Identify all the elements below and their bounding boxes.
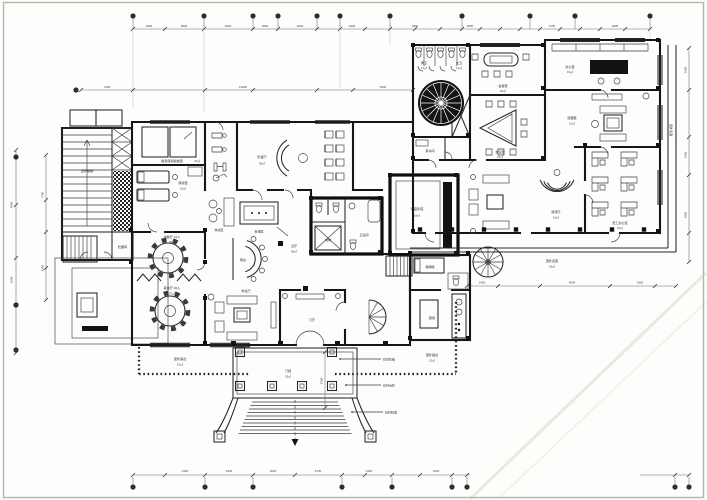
dim-porch-0: 4500 [320, 377, 324, 384]
room-label-bar: 吧台 [240, 257, 246, 262]
room-label-elevator: 电梯 [325, 237, 331, 242]
room-area-reception: 19㎡ [553, 215, 559, 220]
room-area-banquet: 75㎡ [169, 291, 175, 296]
room-label-mens: 男卫 [421, 60, 427, 65]
room-label-nanny: 保姆房 [425, 264, 434, 269]
dim-top-8: 2100 [549, 24, 556, 28]
room-label-parlor: 会客室 [498, 83, 507, 88]
room-area-terrace-west: 15㎡ [177, 362, 183, 367]
dim-top-5: 2300 [349, 24, 356, 28]
room-label-lounge-main: 休息厅 [241, 288, 250, 293]
room-label-pantry: 茶水间 [425, 148, 434, 153]
room-area-av-hall: 36㎡ [259, 161, 265, 166]
dim-walkway-0: 2400 [479, 281, 486, 285]
room-label-office: 办公室 [565, 64, 574, 69]
office-desk [590, 60, 628, 74]
room-label-vestibule: 门厅 [309, 317, 315, 322]
dim-left-inner-0: 7700 [41, 191, 45, 198]
room-label-walkway-east: 室外走廊 [669, 124, 674, 136]
room-label-av-hall: 影音厅 [257, 154, 266, 159]
room-label-terrace-west: 室外露台 [174, 356, 186, 361]
floor-plan-image: 3300 3900 2400 2600 2200 2300 2800 2500 … [0, 0, 707, 500]
dim-upper-2: 5200 [380, 85, 387, 89]
room-label-banquet: 宴会厅 40人 [164, 285, 181, 290]
dim-right-1: 6600 [684, 151, 688, 158]
dim-top-4: 2200 [297, 24, 304, 28]
annotation-stone-plinth: 石材柱墩 [385, 410, 397, 415]
room-area-staff: 24㎡ [617, 225, 623, 230]
room-area-manager: 21㎡ [569, 121, 575, 126]
room-label-gym: 健身房和瑜伽室 [161, 158, 183, 163]
room-label-porch: 门廊 [285, 368, 291, 373]
dim-top-7: 2500 [467, 24, 474, 28]
dim-top-2: 2400 [225, 24, 232, 28]
room-label-staff: 员工办公区 [612, 220, 627, 225]
room-area-walkway-south: 63㎡ [549, 264, 555, 269]
room-label-outdoor-stair: 室外楼梯 [81, 168, 93, 173]
room-label-kitchen: 厨房 [429, 315, 435, 320]
dim-right-2: 4800 [684, 211, 688, 218]
dim-top-6: 2800 [412, 24, 419, 28]
room-label-terrace-east: 室外露台 [426, 352, 438, 357]
room-area-porch: 25㎡ [285, 374, 291, 379]
room-label-womens: 女卫 [456, 60, 462, 65]
scanned-floor-plan-page: 3300 3900 2400 2600 2200 2300 2800 2500 … [0, 0, 707, 500]
dim-upper-1: 12600 [239, 85, 247, 89]
dim-top-3: 2600 [262, 24, 269, 28]
room-label-massage: 按摩室 [178, 180, 187, 185]
room-label-lounge-small: 休息区 [214, 227, 223, 232]
round-floor-ornament [418, 80, 464, 126]
room-area-foyer: 45㎡ [291, 249, 297, 254]
dim-bottom-3: 2700 [315, 469, 322, 473]
dim-upper-0: 7400 [104, 85, 111, 89]
room-area-massage: 19㎡ [180, 186, 186, 191]
room-area-terrace-east: 21㎡ [429, 358, 435, 363]
dim-bottom-5: 1500 [433, 469, 440, 473]
room-label-dining-small: 中餐厅 12人 [164, 234, 181, 239]
dim-left-outer-1: 6200 [10, 276, 14, 283]
dim-bottom-2: 3000 [270, 469, 277, 473]
dim-top-9: 2600 [612, 24, 619, 28]
room-label-manager: 经理室 [567, 115, 576, 120]
room-label-reception: 接待厅 [551, 209, 560, 214]
projection-screen-wall [443, 182, 452, 248]
annotation-stone-rail: 石材栏板 [383, 357, 395, 362]
dim-bottom-0: 3300 [182, 469, 189, 473]
room-area-dining-small: 39㎡ [169, 239, 175, 244]
room-area-mens: 11㎡ [421, 65, 427, 70]
room-area-home-theater: 18㎡ [414, 213, 420, 218]
room-label-billiard: 台球区 [254, 229, 263, 234]
dim-left-inner-1: 8100 [41, 264, 45, 271]
dim-left-outer-0: 9900 [10, 201, 14, 208]
dim-right-0: 5400 [684, 66, 688, 73]
annotation-stone-step: 石材台阶 [383, 383, 395, 388]
room-area-parlor: 20㎡ [500, 88, 506, 93]
dim-top-1: 3900 [181, 24, 188, 28]
dim-bottom-4: 2400 [366, 469, 373, 473]
room-area-meeting: 15㎡ [497, 154, 503, 159]
dim-bottom-1: 2400 [226, 469, 233, 473]
room-label-wc-core: 卫生间 [359, 232, 368, 237]
room-label-storage: 贮藏间 [118, 244, 127, 249]
dim-walkway-1: 9000 [569, 281, 576, 285]
dim-top-0: 3300 [146, 24, 153, 28]
room-area-gym: 47㎡ [194, 158, 200, 163]
dim-walkway-2: 3300 [637, 281, 644, 285]
room-area-office: 15㎡ [567, 69, 573, 74]
paper-background [0, 0, 707, 500]
room-label-meeting: 会议室 [495, 149, 504, 154]
room-label-walkway-south: 室外走廊 [546, 258, 558, 263]
room-label-foyer: 过厅 [291, 243, 297, 248]
room-area-womens: 11㎡ [456, 65, 462, 70]
